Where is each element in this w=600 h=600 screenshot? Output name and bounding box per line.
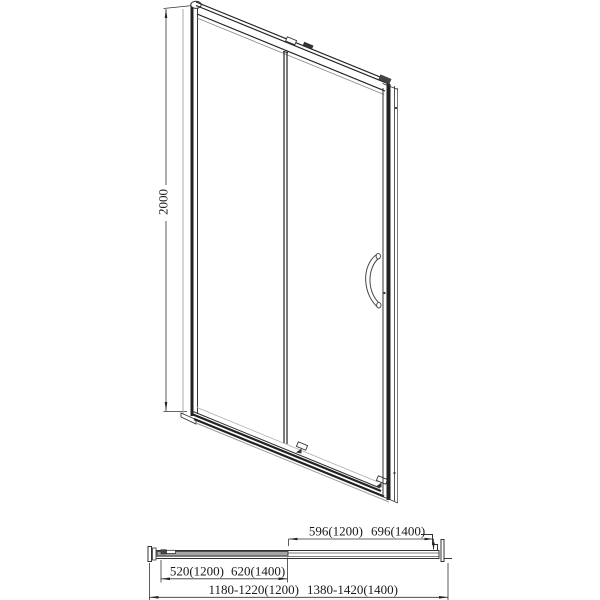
arrow-down-icon (432, 543, 435, 551)
shower-door-technical-drawing: 2000 (0, 0, 600, 600)
left-wall-profile-inner (153, 548, 157, 560)
left-frame (181, 1, 201, 424)
panel-clamp-plate (167, 550, 176, 553)
panel-dim-label-1400: 620(1400) (231, 564, 285, 579)
door-handle (366, 253, 381, 308)
drawing-canvas: 2000 (0, 0, 600, 600)
left-wall-profile (148, 547, 152, 562)
opening-dim-label-1200: 596(1200) (309, 524, 363, 539)
top-roller-bracket-2 (303, 42, 314, 50)
dim-ext-top (164, 6, 194, 9)
overall-dim-label-1200: 1180-1220(1200) (208, 582, 299, 597)
panel-divider (283, 51, 288, 444)
top-rail (196, 2, 391, 95)
top-roller-bracket-1 (286, 37, 297, 45)
screw-dot-2 (383, 292, 385, 294)
panel-clamp-block (161, 549, 167, 554)
panel-dimension: 520(1200) 620(1400) (161, 558, 288, 583)
arrow-left-icon (150, 596, 159, 599)
arrow-up-icon (165, 9, 168, 18)
top-rail-bottom-edge (197, 14, 385, 91)
screw-dot-1 (395, 107, 397, 109)
track (155, 551, 440, 559)
bottom-rail (193, 408, 389, 503)
opening-dim-label-1400: 696(1400) (371, 524, 425, 539)
arrow-left-icon (161, 578, 170, 581)
arrow-left-icon (289, 538, 298, 541)
arrow-down-icon (165, 402, 168, 411)
handle-knob-bottom (377, 302, 381, 308)
side-view: 2000 (156, 1, 399, 503)
panel-dim-label-1200: 520(1200) (170, 564, 224, 579)
height-dim-label: 2000 (156, 189, 171, 215)
right-wall-profile (441, 540, 444, 562)
overall-dim-label-1400: 1380-1420(1400) (307, 582, 398, 597)
height-dimension: 2000 (156, 6, 194, 412)
top-rail-top-edge2 (196, 6, 390, 85)
bottom-roller-bracket-2 (376, 476, 387, 484)
screw-dot-3 (393, 472, 395, 474)
sliding-panel-bar (157, 551, 288, 556)
opening-dimension: 596(1200) 696(1400) (289, 524, 435, 551)
glass-top-edge (197, 18, 384, 95)
bottom-rail-lower-edge (196, 423, 389, 502)
bottom-rail-bar-2 (194, 419, 384, 497)
handle-bow (366, 254, 381, 308)
handle-knob-top (376, 253, 380, 259)
right-frame (383, 84, 399, 504)
arrow-right-icon (439, 596, 448, 599)
plan-view: 596(1200) 696(1400) 520(1200) 620(1400) … (148, 524, 452, 600)
